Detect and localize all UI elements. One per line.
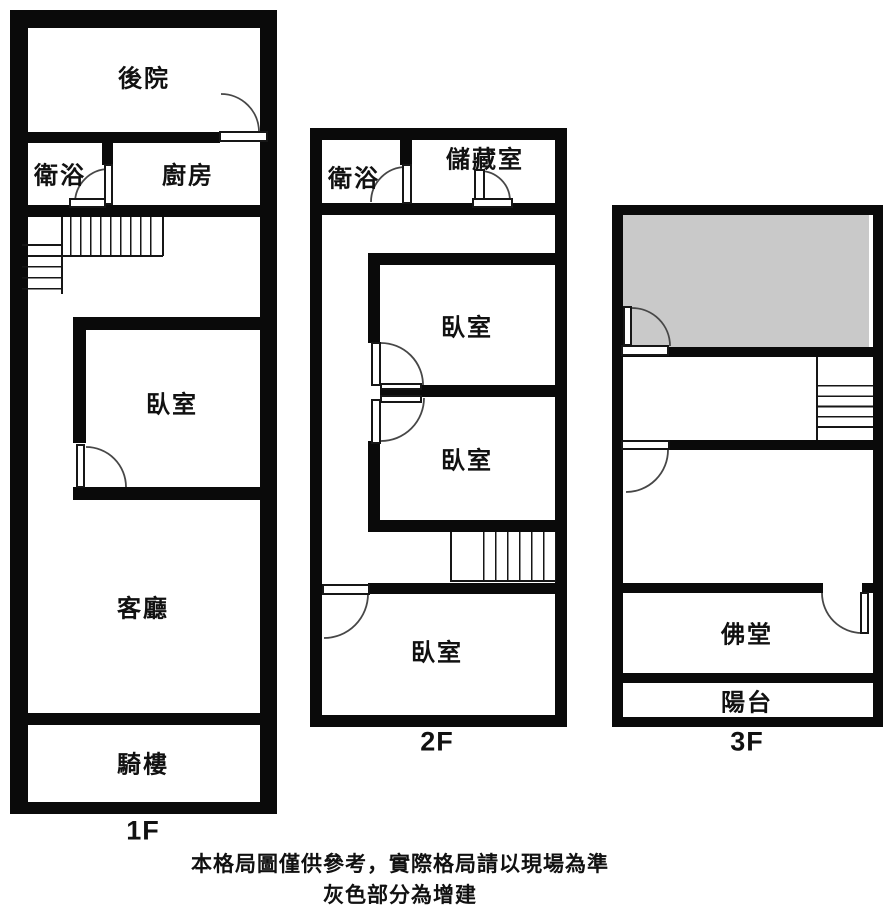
room-label-backyard: 後院 bbox=[118, 59, 170, 94]
stairs-line bbox=[61, 217, 63, 294]
stairs-line bbox=[28, 255, 163, 257]
disclaimer-caption: 本格局圖僅供參考，實際格局請以現場為準 灰色部分為增建 bbox=[60, 849, 740, 911]
room-label-arcade: 騎樓 bbox=[117, 745, 169, 780]
stairs-line bbox=[22, 244, 62, 246]
room-label-storage: 儲藏室 bbox=[446, 140, 524, 175]
floor-label-2f: 2F bbox=[420, 727, 454, 758]
stairs-line bbox=[450, 580, 556, 582]
wall bbox=[10, 10, 277, 28]
wall bbox=[10, 132, 220, 143]
door-arc-bedroom3-2f bbox=[320, 590, 372, 642]
door-leaf bbox=[322, 584, 370, 595]
wall bbox=[612, 205, 883, 215]
stairs-treads bbox=[817, 385, 873, 431]
wall bbox=[10, 802, 277, 814]
room-label-bathroom-2f: 衛浴 bbox=[328, 159, 380, 194]
wall bbox=[368, 441, 380, 520]
door-leaf bbox=[371, 399, 381, 444]
wall bbox=[612, 717, 883, 727]
wall bbox=[73, 317, 277, 330]
room-label-living-room: 客廳 bbox=[117, 589, 169, 624]
room-label-balcony: 陽台 bbox=[721, 683, 773, 718]
wall bbox=[612, 673, 883, 683]
door-leaf bbox=[380, 383, 422, 390]
door-leaf bbox=[402, 164, 412, 204]
wall bbox=[310, 715, 567, 727]
floor-label-3f: 3F bbox=[730, 727, 764, 758]
room-label-bathroom-1f: 衛浴 bbox=[34, 156, 86, 191]
stairs-treads bbox=[70, 217, 156, 255]
door-leaf bbox=[371, 342, 381, 386]
door-leaf bbox=[76, 444, 85, 488]
floor-label-1f: 1F bbox=[126, 816, 160, 847]
disclaimer-line-1: 本格局圖僅供參考，實際格局請以現場為準 bbox=[60, 849, 740, 880]
door-arc-room-3f bbox=[622, 446, 672, 496]
stairs-line bbox=[450, 532, 452, 582]
door-arc-addition bbox=[628, 304, 674, 350]
wall bbox=[400, 140, 412, 165]
wall bbox=[368, 520, 567, 532]
door-arc-bedroom-1f bbox=[82, 443, 132, 493]
door-leaf bbox=[623, 306, 632, 346]
wall bbox=[73, 317, 86, 443]
door-leaf bbox=[860, 592, 869, 634]
room-label-kitchen: 廚房 bbox=[162, 156, 214, 191]
room-label-bedroom-1f: 臥室 bbox=[146, 385, 198, 420]
wall bbox=[873, 205, 883, 727]
stairs-line bbox=[162, 217, 164, 256]
door-leaf bbox=[621, 440, 670, 450]
room-label-bedroom2-2f: 臥室 bbox=[441, 441, 493, 476]
wall bbox=[102, 142, 113, 165]
wall bbox=[310, 203, 567, 215]
wall bbox=[368, 583, 567, 594]
floor-plan-canvas: 後院 衛浴 廚房 臥室 客廳 騎樓 1F bbox=[0, 0, 889, 918]
room-label-bedroom1-2f: 臥室 bbox=[441, 308, 493, 343]
wall bbox=[310, 128, 567, 140]
door-leaf bbox=[219, 131, 268, 142]
door-threshold bbox=[472, 198, 513, 208]
stairs-treads bbox=[483, 532, 556, 582]
door-threshold bbox=[621, 345, 669, 356]
wall bbox=[10, 713, 277, 725]
wall bbox=[555, 128, 567, 727]
wall bbox=[612, 583, 823, 593]
door-threshold bbox=[69, 198, 106, 208]
room-label-bedroom3-2f: 臥室 bbox=[411, 633, 463, 668]
wall bbox=[368, 253, 380, 343]
disclaimer-line-2: 灰色部分為增建 bbox=[60, 880, 740, 911]
room-label-buddhist-hall: 佛堂 bbox=[721, 615, 773, 650]
door-leaf bbox=[380, 395, 422, 403]
wall bbox=[10, 205, 277, 217]
stairs-treads bbox=[22, 266, 62, 294]
door-arc-buddhist-hall bbox=[818, 589, 866, 637]
wall bbox=[10, 10, 28, 814]
wall bbox=[368, 253, 567, 265]
